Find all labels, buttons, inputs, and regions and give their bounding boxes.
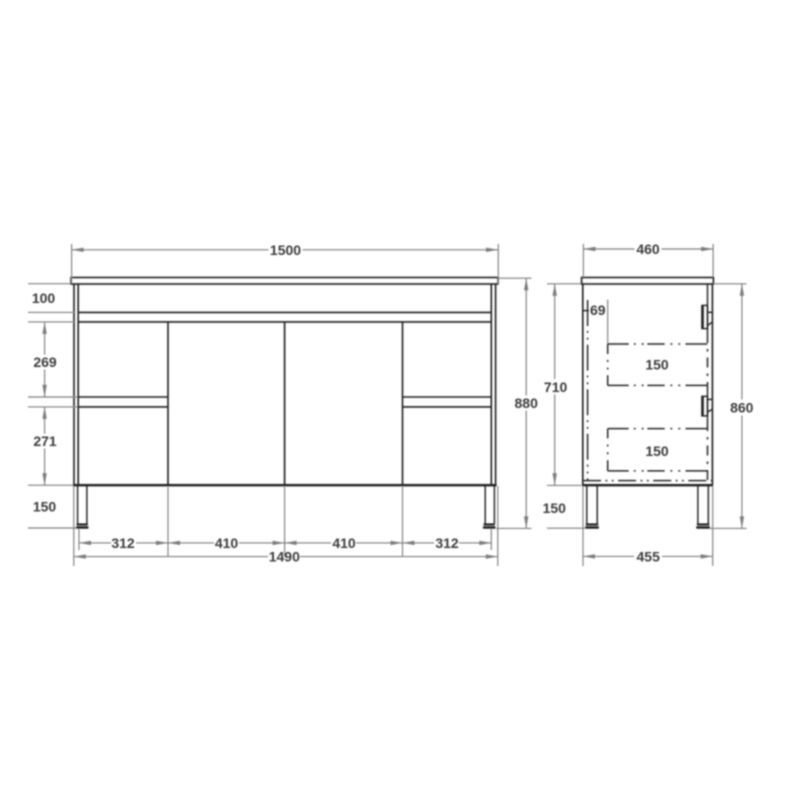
svg-text:1500: 1500 bbox=[270, 242, 301, 258]
svg-text:312: 312 bbox=[435, 535, 459, 551]
svg-text:410: 410 bbox=[215, 535, 239, 551]
svg-text:860: 860 bbox=[730, 400, 754, 416]
svg-text:312: 312 bbox=[111, 535, 135, 551]
svg-text:150: 150 bbox=[645, 443, 669, 459]
svg-text:880: 880 bbox=[515, 395, 539, 411]
svg-text:269: 269 bbox=[33, 354, 57, 370]
svg-text:460: 460 bbox=[636, 241, 660, 257]
svg-text:271: 271 bbox=[33, 433, 57, 449]
svg-text:150: 150 bbox=[645, 356, 669, 372]
svg-text:710: 710 bbox=[544, 379, 568, 395]
svg-text:410: 410 bbox=[332, 535, 356, 551]
svg-text:69: 69 bbox=[590, 302, 606, 318]
svg-text:455: 455 bbox=[637, 548, 661, 564]
svg-text:150: 150 bbox=[543, 500, 567, 516]
svg-text:100: 100 bbox=[32, 290, 56, 306]
svg-text:1490: 1490 bbox=[269, 549, 300, 565]
svg-text:150: 150 bbox=[33, 498, 57, 514]
